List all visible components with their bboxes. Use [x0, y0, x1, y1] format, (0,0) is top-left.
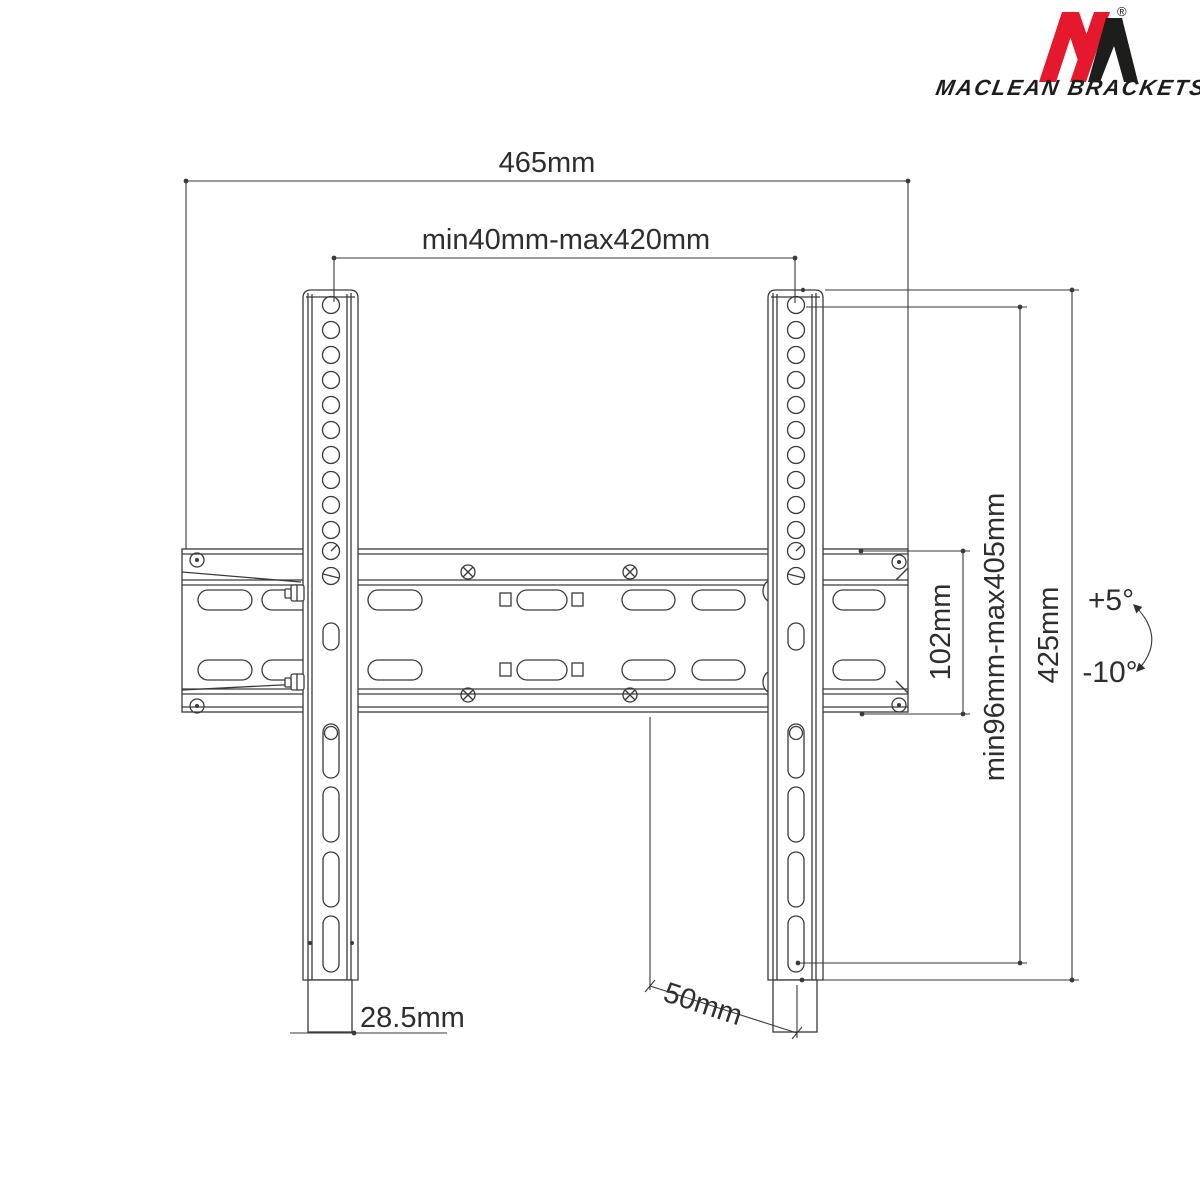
tilt-down-label: -10°	[1082, 656, 1137, 689]
dim-label-vesa-width: min40mm-max420mm	[422, 224, 710, 256]
dim-label-bracket-height: 425mm	[1033, 587, 1065, 684]
logo-mark	[1039, 12, 1138, 82]
dim-vesa-width: min40mm-max420mm	[332, 224, 806, 303]
dim-label-plate-height: 102mm	[925, 584, 957, 681]
tilt-up-label: +5°	[1088, 584, 1134, 617]
maclean-logo: ® MACLEAN BRACKETS	[934, 4, 1200, 100]
left-rail-bottom-tab	[308, 980, 352, 1032]
tilt-annotation: +5° -10°	[1082, 584, 1151, 689]
logo-text: MACLEAN BRACKETS	[934, 75, 1200, 100]
dim-label-total-width: 465mm	[499, 147, 596, 179]
tv-mount-diagram: 465mm min40mm-max420mm 102mm min96mm-max…	[0, 0, 1200, 1200]
dim-label-rail-thickness: 28.5mm	[360, 1002, 465, 1034]
technical-drawing-page: 465mm min40mm-max420mm 102mm min96mm-max…	[0, 0, 1200, 1200]
left-rail-body	[303, 290, 358, 980]
dim-label-depth: 50mm	[660, 977, 747, 1032]
right-rail-bottom-tab	[773, 980, 817, 1032]
right-rail	[763, 290, 823, 1032]
right-rail-body	[768, 290, 823, 980]
registered-symbol: ®	[1117, 4, 1127, 19]
dim-label-vesa-height: min96mm-max405mm	[979, 493, 1011, 781]
